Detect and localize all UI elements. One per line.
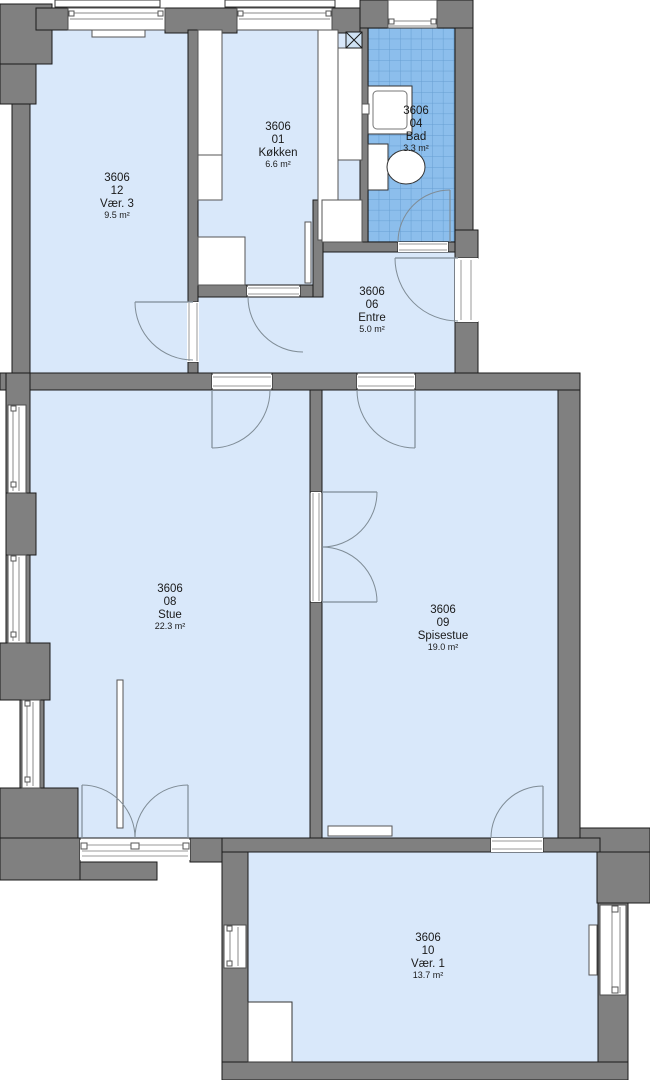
wall-segment: [437, 0, 473, 28]
room-label-unit: 09: [437, 617, 450, 629]
room-label-unit: 12: [111, 185, 124, 197]
window-sill: [55, 0, 160, 7]
room-label-unit: 01: [272, 134, 285, 146]
window-vaer3: [68, 8, 165, 30]
door-opening-koekken: [247, 287, 300, 295]
door-opening-entre-entrance: [455, 258, 478, 322]
room-label-unit: 10: [422, 945, 435, 957]
wall-segment: [36, 8, 68, 30]
window-koekken: [237, 8, 332, 30]
room-label-name: Entre: [358, 312, 386, 324]
wall-segment: [0, 643, 50, 700]
wall-segment: [198, 285, 247, 297]
wall-segment: [455, 28, 473, 230]
floor-plan: 3606 12 Vær. 3 9.5 m² 3606 01 Køkken 6.6…: [0, 0, 650, 1080]
room-label-id: 3606: [415, 932, 441, 944]
window-sill: [225, 0, 335, 7]
room-label-id: 3606: [430, 604, 456, 616]
wall-segment: [543, 838, 600, 852]
room-label-area: 3.3 m²: [403, 143, 429, 153]
radiator-vaer1: [589, 925, 597, 975]
wall-segment: [455, 322, 478, 373]
window-bad: [388, 0, 437, 28]
room-label-unit: 04: [410, 118, 423, 130]
closet-vaer1: [248, 1002, 292, 1062]
room-label-name: Vær. 3: [100, 198, 134, 210]
room-label-id: 3606: [359, 286, 385, 298]
closet-entre: [322, 200, 362, 242]
kitchen-door-leaf: [305, 222, 311, 283]
wall-segment: [0, 838, 80, 880]
wall-segment: [6, 493, 36, 555]
door-opening-stue-double: [311, 492, 321, 602]
wall-segment: [12, 104, 30, 373]
door-opening-vaer1: [491, 838, 543, 852]
room-label-area: 19.0 m²: [428, 642, 459, 652]
room-label-area: 5.0 m²: [359, 324, 385, 334]
wall-segment: [222, 1062, 628, 1080]
room-label-area: 13.7 m²: [413, 970, 444, 980]
floor-plan-canvas: 3606 12 Vær. 3 9.5 m² 3606 01 Køkken 6.6…: [0, 0, 650, 1080]
room-label-area: 22.3 m²: [155, 621, 186, 631]
wall-segment: [222, 838, 491, 852]
room-label-name: Bad: [406, 131, 426, 143]
room-label-name: Køkken: [259, 147, 298, 159]
wall-segment: [415, 373, 580, 390]
wall-segment: [165, 8, 237, 33]
door-opening-spisestue: [357, 375, 415, 388]
wall-segment: [188, 362, 198, 373]
wall-segment: [558, 390, 580, 838]
radiator-stue: [117, 680, 123, 828]
wall-segment: [360, 0, 388, 28]
room-label-name: Stue: [158, 609, 182, 621]
wall-segment: [455, 230, 478, 258]
room-label-id: 3606: [265, 121, 291, 133]
room-label-unit: 08: [164, 596, 177, 608]
wall-segment: [0, 373, 212, 390]
window-vaer1-left: [224, 925, 246, 968]
window-stue-3: [22, 700, 40, 788]
duct-symbol: [346, 32, 362, 48]
wall-segment: [310, 602, 322, 838]
wall-segment: [80, 862, 157, 880]
window-stue-2: [8, 555, 26, 643]
wall-segment: [300, 285, 313, 297]
room-label-name: Spisestue: [418, 630, 469, 642]
wall-segment: [188, 30, 198, 302]
room-label-unit: 06: [366, 299, 379, 311]
room-label-id: 3606: [403, 105, 429, 117]
wall-segment: [448, 242, 455, 252]
wall-segment: [313, 242, 398, 252]
window-stue-1: [8, 405, 26, 493]
radiator-vaer3: [92, 30, 145, 37]
wall-segment: [310, 390, 322, 492]
wall-segment: [597, 852, 650, 903]
radiator-spisestue: [328, 826, 392, 836]
door-opening-stue-french: [80, 840, 190, 860]
wall-segment: [272, 373, 357, 390]
room-label-area: 6.6 m²: [265, 159, 291, 169]
room-label-name: Vær. 1: [411, 958, 445, 970]
room-label-area: 9.5 m²: [104, 210, 130, 220]
room-label-id: 3606: [157, 583, 183, 595]
window-vaer1-right: [600, 905, 626, 995]
door-opening-stue: [212, 375, 272, 388]
room-vaer1-floor: [248, 852, 598, 1062]
wall-segment: [0, 64, 36, 104]
door-opening-vaer3: [187, 302, 199, 362]
wall-segment: [190, 838, 222, 862]
room-label-id: 3606: [104, 172, 130, 184]
door-opening-bad: [398, 242, 448, 252]
